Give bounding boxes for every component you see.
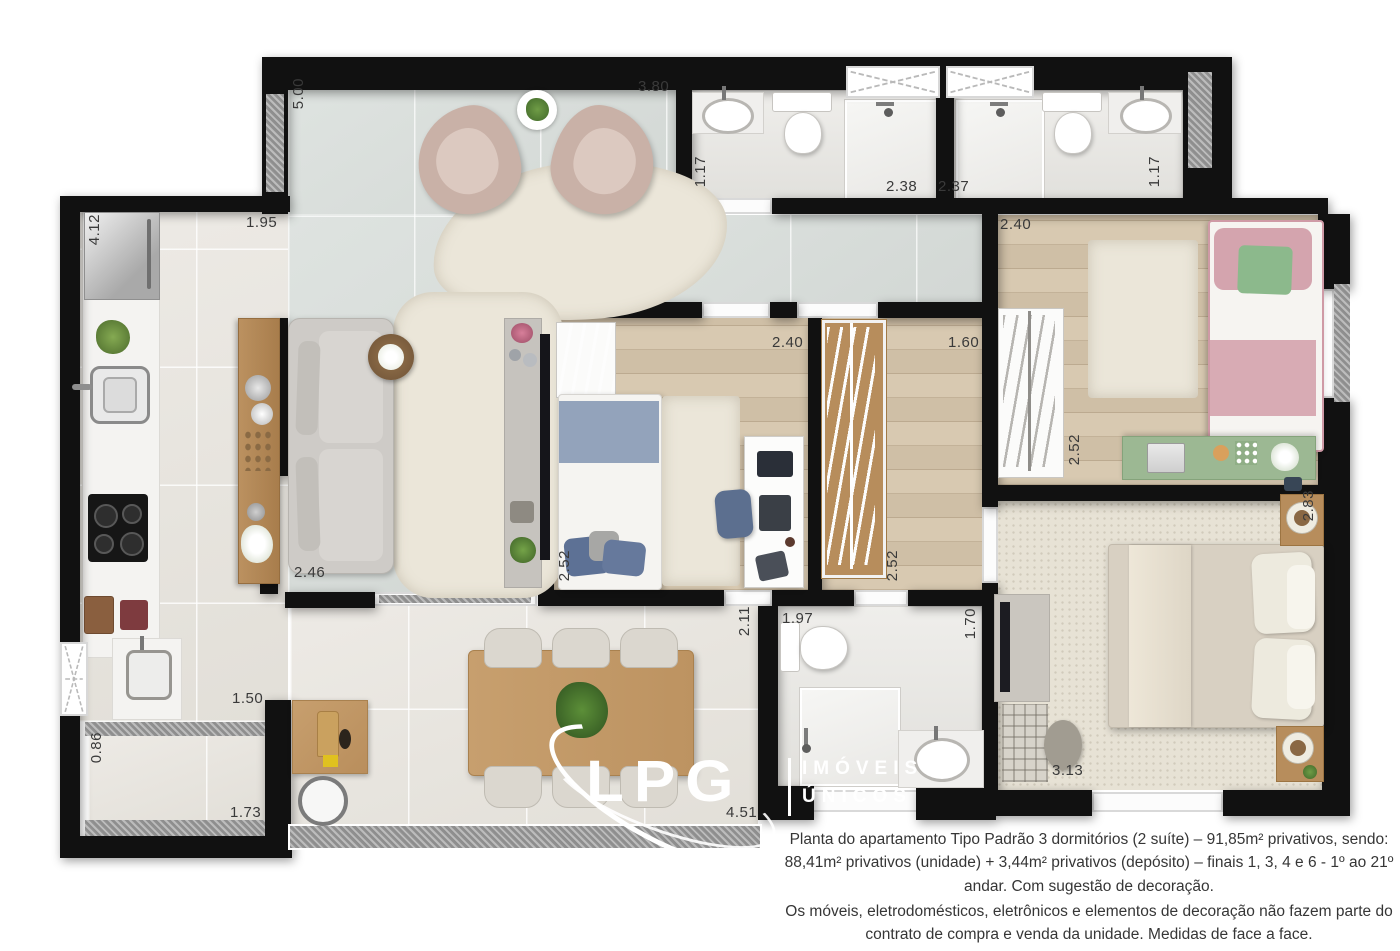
wall-bedroom3-suite	[996, 485, 1328, 501]
burner-3	[94, 534, 114, 554]
bathroom2-faucet	[1140, 86, 1144, 100]
coffee-table	[368, 334, 414, 380]
corridor-opening	[724, 590, 772, 606]
round-stool	[298, 776, 348, 826]
storage-sill-bottom	[85, 820, 265, 836]
wall-bath-divider	[936, 88, 954, 214]
bathroom1-toilet	[784, 112, 822, 154]
armchair-right-seat	[569, 124, 641, 199]
dim-closet-depth: 2.52	[884, 550, 901, 581]
bedroom3-desk-plant	[1271, 443, 1299, 471]
bedroom3-desk	[1122, 436, 1316, 480]
suite-faucet	[934, 726, 938, 740]
bedroom2-bed	[558, 394, 662, 590]
tv-console	[504, 318, 542, 588]
suite-door-opening	[982, 507, 998, 583]
bathroom2-toilet	[1054, 112, 1092, 154]
master-shoe-rack	[1002, 704, 1048, 782]
dining-chair-top-3	[620, 628, 678, 668]
dim-suite-depth: 2.83	[1300, 490, 1317, 521]
closet-rack-wood	[822, 320, 886, 578]
bedroom3-wardrobe-rail	[1028, 311, 1031, 471]
bedroom2-door-opening	[702, 302, 770, 318]
bedroom3-desk-item-2	[1235, 441, 1257, 465]
bathroom1-shower-arm	[876, 102, 894, 106]
dim-bath1-width: 1.17	[692, 156, 709, 187]
storage-sill-top	[85, 722, 265, 736]
suite-bath-door-opening	[854, 590, 908, 606]
concrete-column-terrace	[266, 94, 284, 192]
dim-bedroom2-width: 2.40	[772, 334, 803, 351]
dim-bath2-width: 1.17	[1146, 156, 1163, 187]
kitchen-item-wood	[84, 596, 114, 634]
wall-master-bottom-a	[996, 790, 1092, 816]
sideboard-cups	[243, 429, 273, 471]
burner-2	[122, 504, 142, 524]
dim-bedroom3-wardrobe: 2.52	[1066, 434, 1083, 465]
console-plant	[510, 537, 536, 563]
dim-suite-width: 3.13	[1052, 762, 1083, 779]
bathroom1-shower-head-icon	[884, 108, 893, 117]
wall-top	[262, 57, 1232, 90]
sofa-pillow-1	[295, 341, 320, 436]
bedroom3-laptop	[1147, 443, 1185, 473]
kitchen-faucet	[72, 384, 92, 390]
bedroom2-book	[755, 550, 790, 582]
bathroom2-louver-window-icon	[948, 68, 1032, 96]
dim-living-width: 2.46	[294, 564, 325, 581]
concrete-column-topright	[1188, 72, 1212, 168]
bedroom3-desk-item-1	[1213, 445, 1229, 461]
master-pillow-4	[1287, 645, 1315, 709]
bedroom2-chair	[714, 489, 754, 540]
dim-suitebath-depth: 1.70	[962, 608, 979, 639]
master-nightstand-bottom	[1276, 726, 1324, 782]
wall-suitebath-bottom-b	[916, 786, 996, 820]
master-bed	[1108, 544, 1324, 728]
dim-bedroom2-depth: 2.52	[556, 550, 573, 581]
wall-bottom-left	[60, 836, 292, 858]
tv	[540, 334, 550, 560]
wall-living-dining-stub	[285, 592, 375, 608]
dim-corridor-depth: 2.11	[736, 606, 753, 636]
service-door-icon	[62, 644, 86, 714]
desk-note	[323, 755, 338, 767]
closet-door-opening	[797, 302, 878, 318]
dim-hall-width: 2.40	[1000, 216, 1031, 233]
dim-kitchen-length: 4.12	[86, 214, 103, 245]
caption-line-2: Os móveis, eletrodomésticos, eletrônicos…	[782, 900, 1396, 947]
coffee-table-flowers	[378, 344, 404, 370]
caption-line-1: Planta do apartamento Tipo Padrão 3 dorm…	[782, 828, 1396, 898]
wall-master-right	[1322, 501, 1350, 816]
bedroom2-desk-item	[785, 537, 795, 547]
wall-storage-right	[265, 700, 291, 846]
bedroom2-pillow-2	[601, 539, 646, 577]
wall-hall-c	[878, 302, 988, 318]
floor-plan: 5.00 3.80 1.17 2.38 2.37 1.17 4.12 1.95 …	[0, 0, 1400, 951]
lpg-logo: LPG IMÓVEIS ÚNICOS	[540, 744, 900, 840]
sideboard-plate-2	[251, 403, 273, 425]
master-lamp-bottom	[1283, 733, 1313, 763]
master-window	[1092, 792, 1223, 812]
bedroom3-rug	[1088, 240, 1198, 398]
wall-hall-b	[770, 302, 797, 318]
dim-bath1-length: 2.38	[886, 178, 917, 195]
sideboard-flowers	[241, 525, 273, 563]
kitchen-sink	[90, 366, 150, 424]
wall-bedroom2-bottom-b	[772, 590, 854, 606]
bathroom1-louver-window-icon	[848, 68, 938, 96]
dining-chair-bottom-1	[484, 766, 542, 808]
kitchen-sideboard	[238, 318, 280, 584]
sofa-pillow-2	[295, 457, 320, 552]
bathroom2-shower-arm	[990, 102, 1008, 106]
console-flower	[511, 323, 533, 343]
armchair-left-seat	[432, 124, 503, 198]
dim-kitchen-width: 1.95	[246, 214, 277, 231]
master-bed-throw	[1129, 545, 1191, 727]
dim-bath2-length: 2.37	[938, 178, 969, 195]
dim-closet-width: 1.60	[948, 334, 979, 351]
concrete-sill-right	[1334, 284, 1350, 402]
bathroom2-shower-head-icon	[996, 108, 1005, 117]
sideboard-plate-1	[245, 375, 271, 401]
closet-rack-rail	[850, 323, 853, 569]
wall-kitchen-top	[60, 196, 290, 212]
wall-left-outer	[60, 212, 80, 844]
stove	[88, 494, 148, 562]
sofa-cushion-2	[319, 449, 383, 561]
bedroom2-desk	[744, 436, 804, 588]
dining-chair-top-1	[484, 628, 542, 668]
desk-board	[317, 711, 339, 757]
bedroom3-bed	[1208, 220, 1324, 452]
master-pillow-3	[1287, 565, 1315, 629]
dim-suitebath-width: 1.97	[782, 610, 813, 627]
dim-storage-length: 1.73	[230, 804, 261, 821]
master-plant-small	[1303, 765, 1317, 779]
bathroom2-sink	[1120, 98, 1172, 134]
dim-terrace-width: 3.80	[638, 78, 669, 95]
caption: Planta do apartamento Tipo Padrão 3 dorm…	[782, 828, 1396, 948]
bedroom3-green-pillow	[1237, 245, 1293, 295]
bathroom1-sink	[702, 98, 754, 134]
logo-divider	[788, 758, 791, 816]
wall-bedroom2-bottom-a	[538, 590, 724, 606]
dim-terrace-depth: 5.00	[290, 78, 307, 109]
dining-chair-top-2	[552, 628, 610, 668]
sideboard-vase	[247, 503, 265, 521]
kitchen-item-red	[120, 600, 148, 630]
master-tv	[1000, 602, 1010, 692]
fridge-handle	[147, 219, 151, 289]
console-basket	[510, 501, 534, 523]
bedroom2-blanket	[559, 401, 659, 463]
bathroom2-toilet-tank	[1042, 92, 1102, 112]
wall-bedroom3-top-a	[988, 198, 1112, 214]
bedroom3-blanket	[1210, 340, 1316, 416]
logo-tagline-2: ÚNICOS	[802, 786, 912, 808]
wall-bedroom2-bottom-c	[908, 590, 998, 606]
burner-1	[94, 504, 118, 528]
laundry-faucet	[140, 636, 144, 650]
wall-bedroom2-closet	[808, 318, 822, 606]
wall-bath-bottom-b	[772, 198, 1002, 214]
bathroom1-toilet-tank	[772, 92, 832, 112]
logo-tagline-1: IMÓVEIS	[802, 758, 923, 780]
side-desk	[292, 700, 368, 774]
wall-bedroom3-top-b	[1188, 198, 1328, 214]
bedroom3-wardrobe	[998, 308, 1064, 478]
master-decor-item	[1284, 477, 1302, 491]
burner-4	[120, 532, 144, 556]
wall-closet-right-a	[982, 214, 998, 507]
desk-item	[339, 729, 351, 749]
console-vase-1	[509, 349, 521, 361]
bedroom2-clothes-rack	[556, 322, 616, 398]
kitchen-herb-pot	[96, 320, 130, 354]
bathroom1-faucet	[722, 86, 726, 100]
kitchen-sink-basin	[103, 377, 137, 413]
laundry-tank-sink	[126, 650, 172, 700]
console-vase-2	[523, 353, 537, 367]
bedroom2-keyboard	[759, 495, 791, 531]
terrace-plant	[526, 98, 549, 121]
logo-text: LPG	[586, 748, 743, 815]
suite-toilet-tank	[780, 622, 800, 672]
dim-storage-width: 0.86	[88, 732, 105, 763]
dim-service-width: 1.50	[232, 690, 263, 707]
bedroom2-laptop	[757, 451, 793, 477]
suite-toilet	[800, 626, 848, 670]
